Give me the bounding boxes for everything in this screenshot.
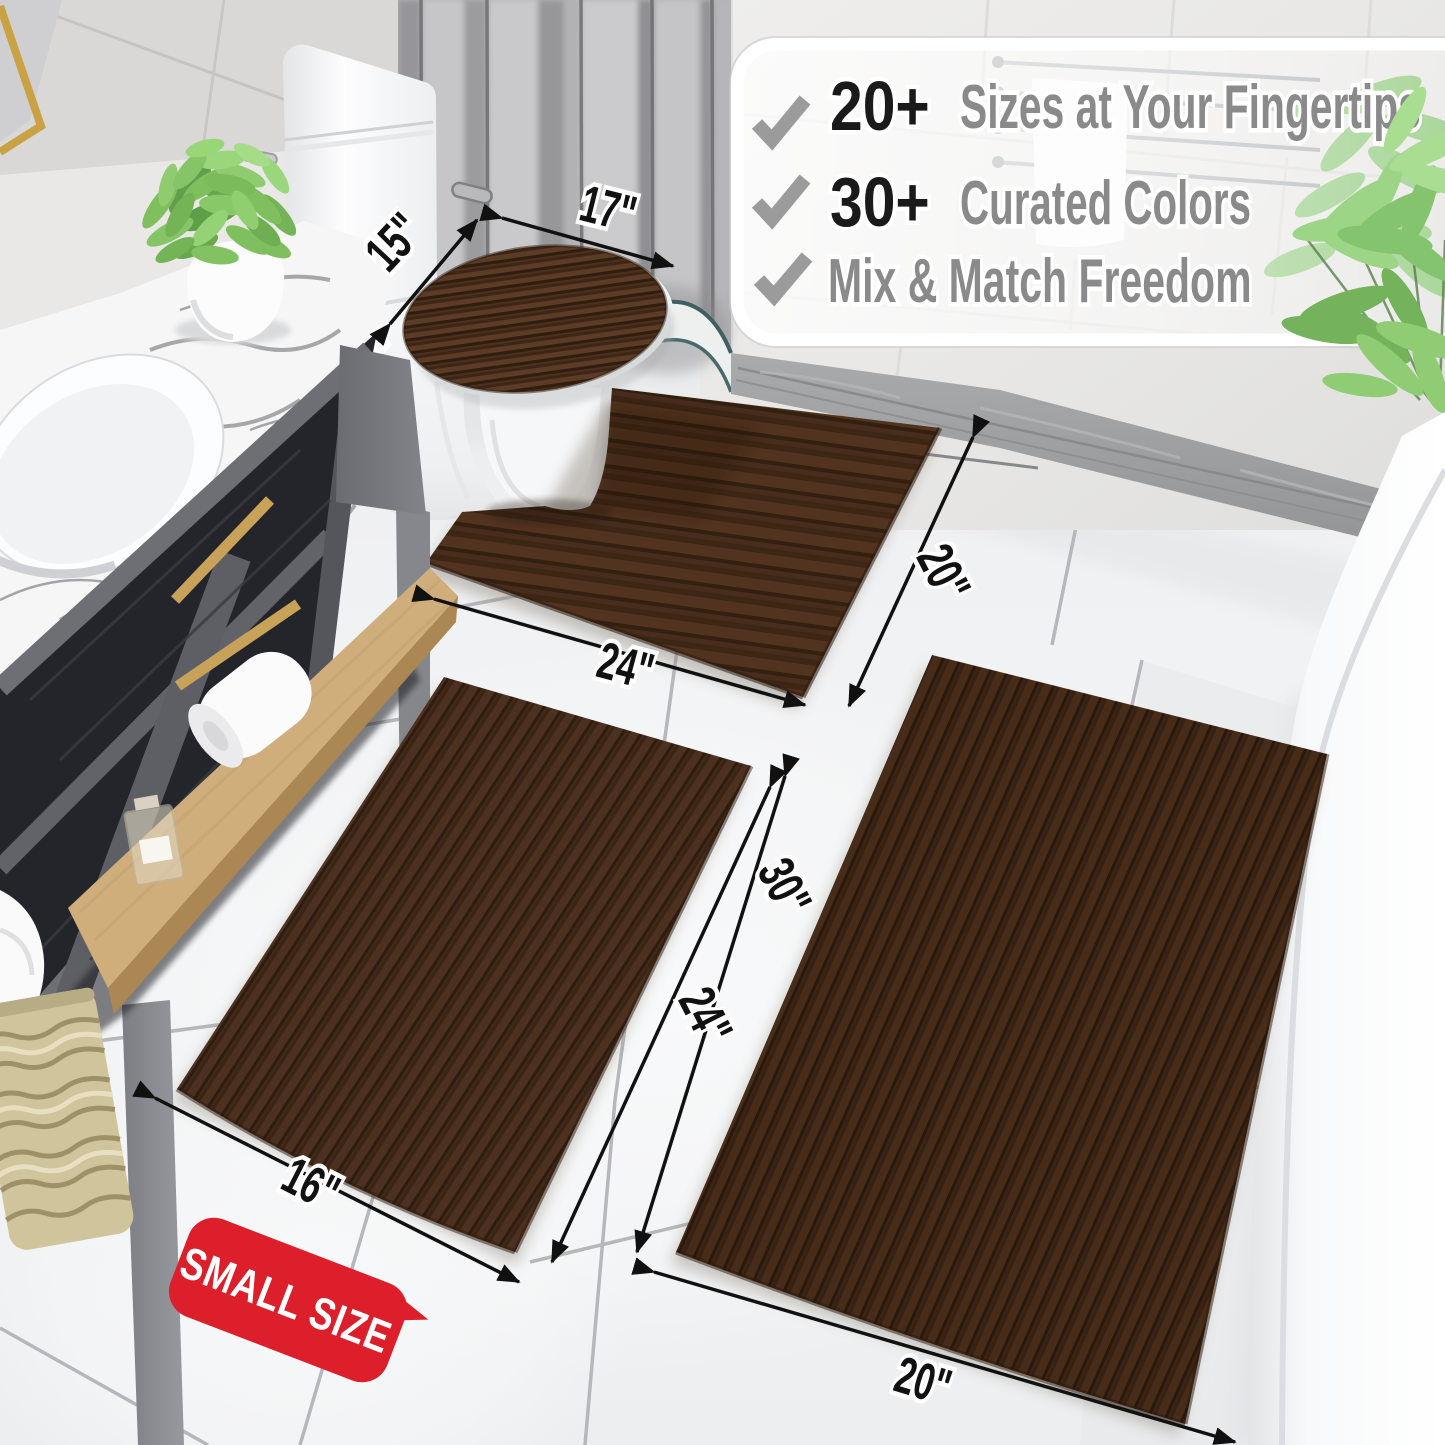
svg-text:Curated Colors: Curated Colors (960, 169, 1251, 238)
svg-text:30+: 30+ (830, 162, 930, 241)
svg-text:Sizes at Your Fingertips: Sizes at Your Fingertips (960, 72, 1421, 142)
svg-text:Mix & Match Freedom: Mix & Match Freedom (828, 247, 1252, 317)
svg-text:20+: 20+ (830, 66, 930, 145)
